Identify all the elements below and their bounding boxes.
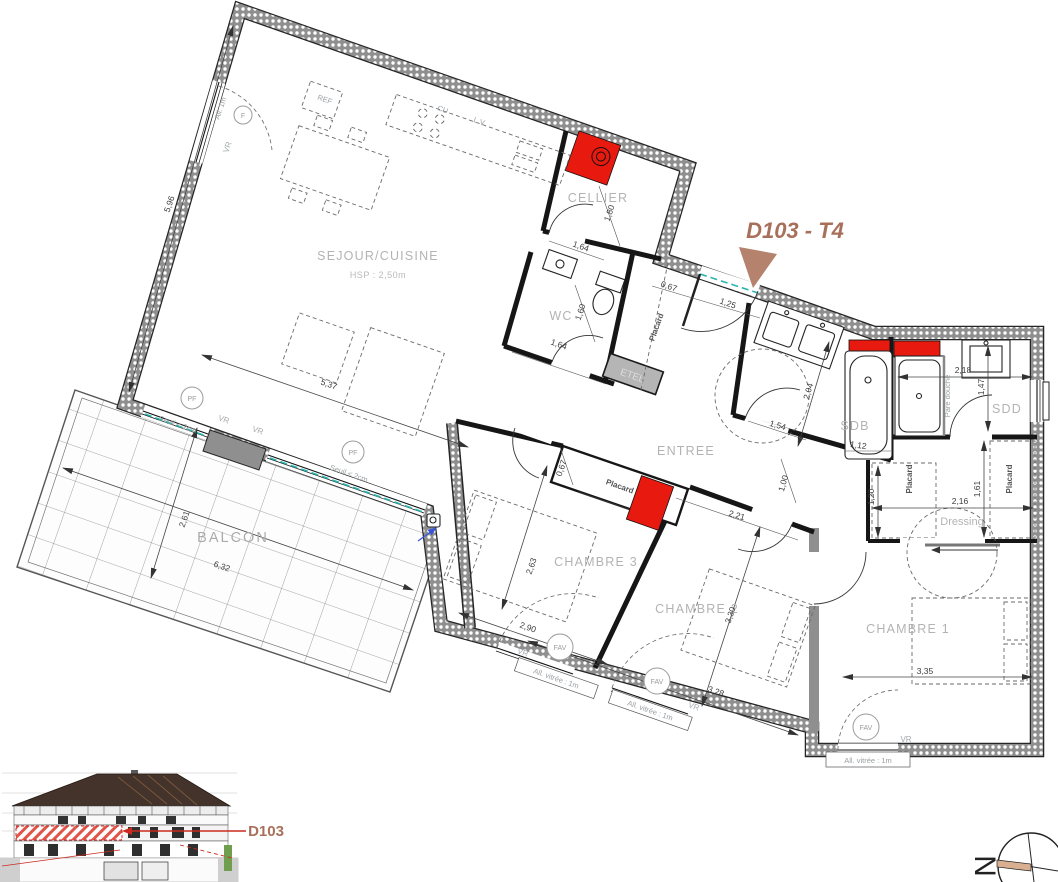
label-wc: WC: [549, 309, 572, 323]
label-sejour: SEJOUR/CUISINE: [317, 249, 439, 263]
compass-north-label: N: [968, 855, 1001, 877]
dim-placard-left: 1,20: [866, 488, 876, 505]
label-placard-right: Placard: [1005, 464, 1014, 493]
fav-circle-ch2: FAV: [644, 668, 670, 694]
svg-text:FAV: FAV: [651, 679, 664, 686]
label-pare-douche: Pare douche: [943, 375, 952, 418]
label-sdd: SDD: [992, 402, 1022, 416]
label-chambre3: CHAMBRE 3: [554, 555, 638, 569]
compass: N: [968, 833, 1058, 882]
shower: [895, 356, 944, 436]
fav-circle-ch3: FAV: [547, 634, 573, 660]
label-entree: ENTREE: [657, 444, 715, 458]
label-balcon: BALCON: [197, 530, 269, 546]
svg-text:F: F: [241, 113, 245, 120]
allege-vitree-ch1: All. vitrée : 1m: [826, 752, 910, 767]
pf-circle-1: PF: [181, 387, 203, 409]
compass-circle: [998, 833, 1058, 882]
svg-text:All. vitrée : 1m: All. vitrée : 1m: [844, 756, 892, 765]
label-vr-6: VR: [900, 735, 911, 744]
label-placard-left: Placard: [905, 464, 914, 493]
label-hsp: HSP : 2,50m: [350, 270, 406, 280]
highlighted-unit: [16, 826, 122, 840]
roof: [12, 774, 230, 806]
fav-circle-ch1: FAV: [853, 714, 879, 740]
svg-text:PF: PF: [188, 396, 197, 403]
elevation-inset: D103: [0, 770, 284, 882]
dim-placard-right: 1,61: [972, 480, 982, 497]
svg-text:FAV: FAV: [554, 645, 567, 652]
pf-circle-2: PF: [342, 441, 364, 463]
plan-title: D103 - T4: [746, 218, 844, 243]
svg-text:FAV: FAV: [860, 725, 873, 732]
f-circle: F: [234, 106, 252, 124]
label-sdb: SDB: [840, 419, 869, 433]
floor-plan-svg: SEJOUR/CUISINE HSP : 2,50m CELLIER WC EN…: [0, 0, 1058, 882]
dim-sdd-width: 2,18: [955, 365, 972, 375]
label-cellier: CELLIER: [568, 191, 629, 205]
title-block: D103 - T4: [739, 218, 844, 288]
floor-plan-page: SEJOUR/CUISINE HSP : 2,50m CELLIER WC EN…: [0, 0, 1058, 882]
compass-needle: [997, 860, 1031, 871]
label-dressing: Dressing: [940, 516, 983, 528]
dim-dressing-width: 2,16: [952, 496, 969, 506]
dim-sdd-depth: 1,47: [976, 378, 986, 395]
svg-text:PF: PF: [349, 450, 358, 457]
radiator-sdd: [894, 341, 940, 357]
elevation-unit-label: D103: [248, 823, 284, 840]
label-chambre1: CHAMBRE 1: [866, 622, 950, 636]
dim-chambre1-width: 3,35: [917, 666, 934, 676]
